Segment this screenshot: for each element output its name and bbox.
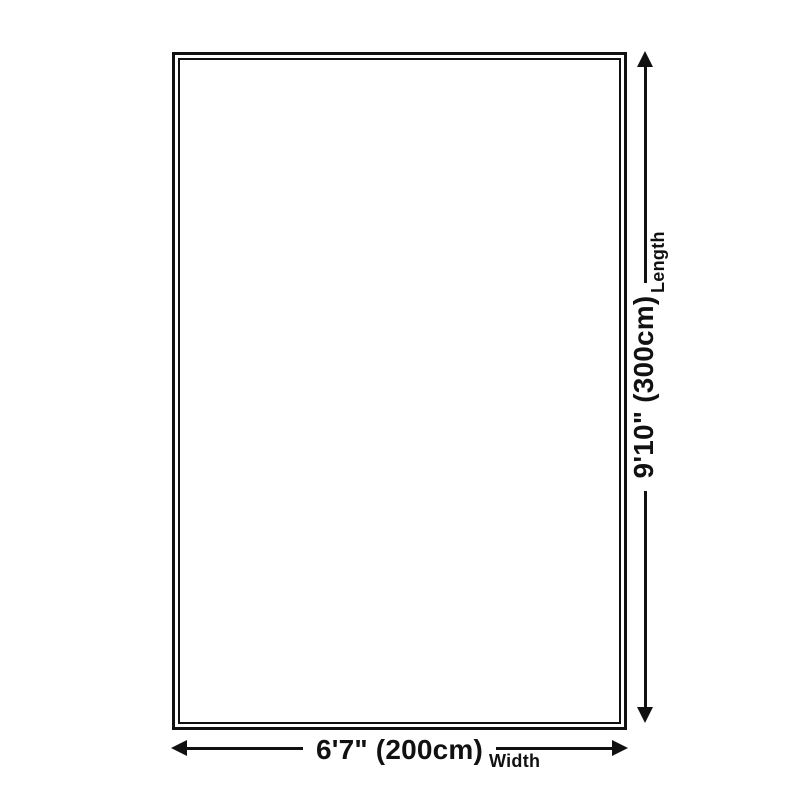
length-dimension: 9'10" (300cm) Length [623, 51, 667, 723]
length-dimension-line-lower [644, 491, 647, 707]
arrow-left-icon [171, 740, 187, 756]
width-axis-label: Width [489, 752, 540, 772]
length-dimension-line-upper [644, 67, 647, 283]
arrow-up-icon [637, 51, 653, 67]
arrow-down-icon [637, 707, 653, 723]
arrow-right-icon [612, 740, 628, 756]
rug-size-diagram: 9'10" (300cm) Length 6'7" (200cm) Width [0, 0, 800, 800]
length-axis-label: Length [649, 231, 669, 293]
width-dimension-line-right [496, 747, 612, 750]
rug-outline-inner [178, 58, 621, 724]
rug-outline [172, 52, 627, 730]
length-value: 9'10" (300cm) [630, 283, 658, 492]
width-value: 6'7" (200cm) [303, 736, 496, 764]
width-dimension: 6'7" (200cm) Width [171, 726, 628, 770]
width-dimension-line-left [187, 747, 303, 750]
